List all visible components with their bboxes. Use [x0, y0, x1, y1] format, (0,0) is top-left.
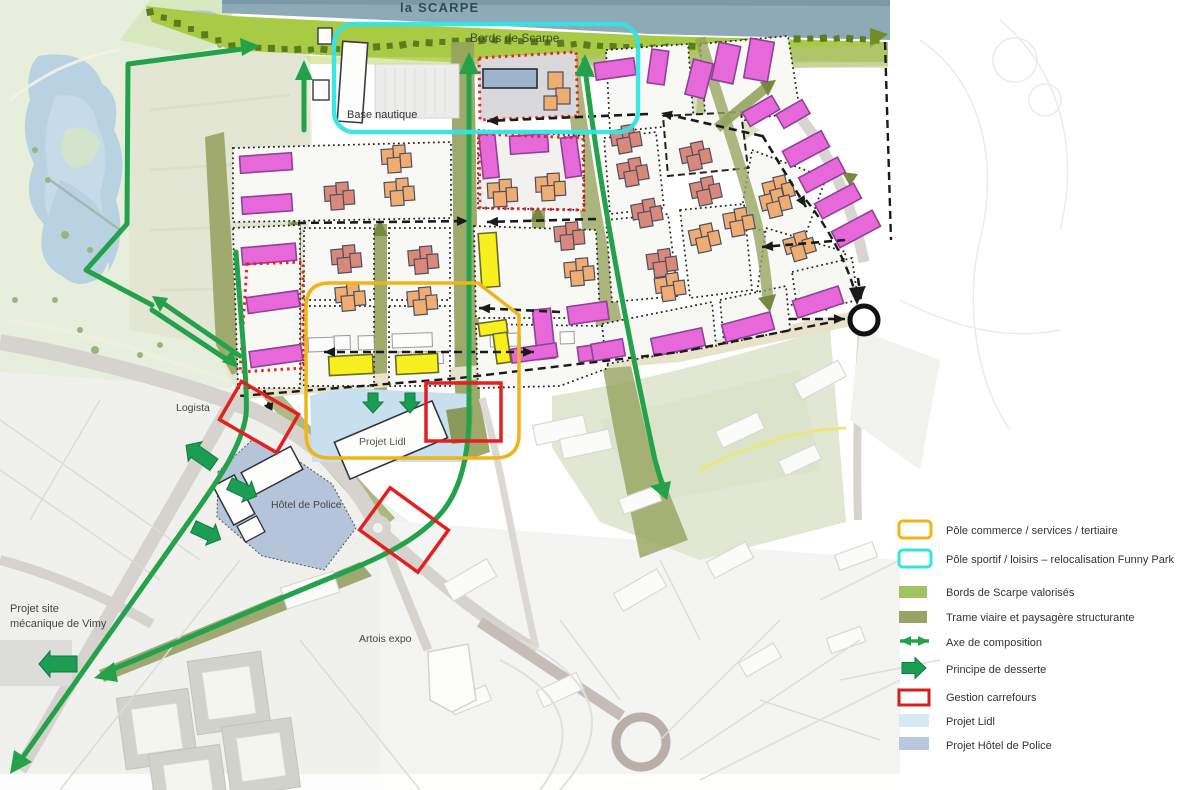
svg-text:Axe de composition: Axe de composition — [946, 637, 1042, 649]
svg-text:Logista: Logista — [176, 402, 210, 414]
svg-text:Pôle commerce / services / ter: Pôle commerce / services / tertiaire — [946, 525, 1118, 537]
svg-text:Bords de Scarpe: Bords de Scarpe — [470, 31, 560, 45]
svg-text:Base nautique: Base nautique — [347, 109, 417, 121]
svg-text:Pôle sportif / loisirs – reloc: Pôle sportif / loisirs – relocalisation … — [946, 554, 1175, 566]
svg-text:Projet Lidl: Projet Lidl — [359, 436, 406, 448]
svg-text:Principe de desserte: Principe de desserte — [946, 664, 1046, 676]
svg-text:mécanique de Vimy: mécanique de Vimy — [10, 618, 107, 630]
svg-text:Hôtel de Police: Hôtel de Police — [271, 499, 342, 511]
svg-text:Projet site: Projet site — [10, 603, 59, 615]
svg-text:Bords de Scarpe valorisés: Bords de Scarpe valorisés — [946, 587, 1075, 599]
svg-text:Gestion carrefours: Gestion carrefours — [946, 692, 1037, 704]
svg-text:Trame viaire et paysagère stru: Trame viaire et paysagère structurante — [946, 612, 1135, 624]
svg-text:Projet Lidl: Projet Lidl — [946, 716, 995, 728]
svg-text:Projet Hôtel de Police: Projet Hôtel de Police — [946, 740, 1052, 752]
svg-text:la SCARPE: la SCARPE — [400, 0, 479, 15]
svg-text:Artois expo: Artois expo — [359, 633, 412, 645]
